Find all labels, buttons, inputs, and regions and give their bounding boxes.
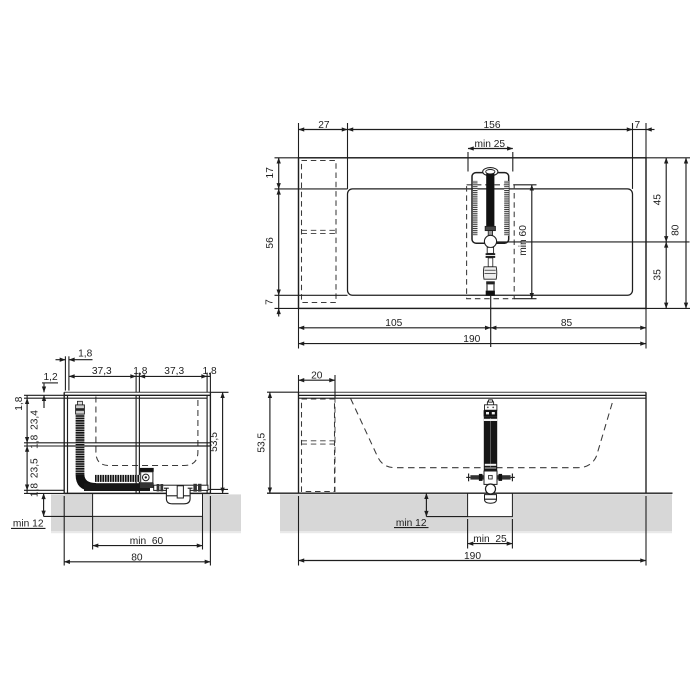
svg-text:1,2: 1,2	[44, 372, 58, 383]
svg-text:53,5: 53,5	[256, 432, 267, 452]
svg-text:80: 80	[670, 224, 681, 236]
svg-text:23,5: 23,5	[30, 458, 41, 478]
svg-text:56: 56	[265, 237, 276, 249]
svg-text:1,8: 1,8	[133, 366, 147, 377]
svg-text:min 60: min 60	[518, 225, 529, 256]
svg-text:min 12: min 12	[13, 518, 44, 529]
svg-text:20: 20	[311, 371, 323, 382]
svg-text:1,8: 1,8	[30, 434, 41, 448]
svg-text:85: 85	[561, 318, 573, 329]
svg-text:45: 45	[652, 194, 663, 206]
svg-text:80: 80	[131, 552, 143, 563]
svg-text:min 25: min 25	[473, 534, 507, 545]
svg-text:1,8: 1,8	[203, 366, 217, 377]
svg-text:37,3: 37,3	[92, 366, 112, 377]
svg-text:1,8: 1,8	[14, 396, 25, 410]
svg-text:190: 190	[463, 334, 480, 345]
svg-text:1,8: 1,8	[78, 349, 92, 360]
svg-text:7: 7	[634, 120, 640, 131]
svg-text:min 60: min 60	[130, 536, 164, 547]
svg-text:105: 105	[385, 318, 402, 329]
svg-text:min 25: min 25	[475, 139, 506, 150]
svg-text:1,8: 1,8	[30, 483, 41, 497]
svg-text:7: 7	[265, 299, 276, 305]
svg-text:156: 156	[484, 120, 501, 131]
svg-text:190: 190	[464, 551, 481, 562]
svg-text:17: 17	[265, 167, 276, 179]
svg-text:27: 27	[318, 120, 330, 131]
svg-text:35: 35	[652, 269, 663, 281]
svg-text:53,5: 53,5	[209, 432, 220, 452]
svg-text:37,3: 37,3	[164, 366, 184, 377]
svg-text:23,4: 23,4	[30, 410, 41, 430]
